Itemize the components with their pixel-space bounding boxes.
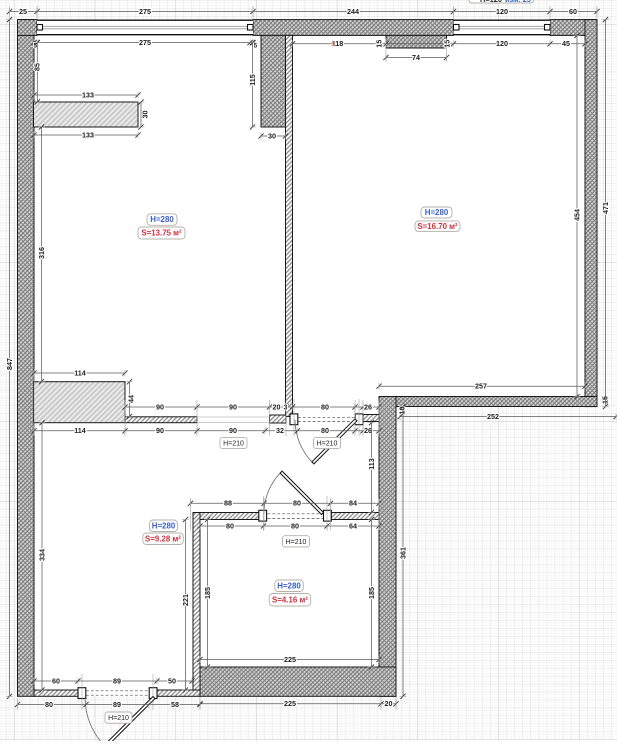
svg-text:80: 80 xyxy=(45,700,53,709)
svg-text:20: 20 xyxy=(273,402,281,411)
svg-text:S=13.75 м²: S=13.75 м² xyxy=(141,229,182,238)
svg-text:244: 244 xyxy=(347,7,359,16)
svg-text:185: 185 xyxy=(367,587,376,599)
svg-text:133: 133 xyxy=(82,90,94,99)
svg-text:изм. 25: изм. 25 xyxy=(505,0,531,4)
svg-text:114: 114 xyxy=(74,426,86,435)
svg-text:225: 225 xyxy=(284,655,296,664)
svg-text:120: 120 xyxy=(496,39,508,48)
svg-text:85: 85 xyxy=(33,63,42,71)
svg-text:120: 120 xyxy=(496,7,508,16)
svg-text:316: 316 xyxy=(37,247,46,259)
svg-text:20: 20 xyxy=(385,699,393,708)
svg-text:H=210: H=210 xyxy=(286,539,307,546)
svg-text:257: 257 xyxy=(475,382,487,391)
svg-text:334: 334 xyxy=(37,549,46,561)
svg-text:89: 89 xyxy=(113,676,121,685)
svg-text:275: 275 xyxy=(139,7,151,16)
svg-text:26: 26 xyxy=(364,426,372,435)
svg-text:50: 50 xyxy=(168,676,176,685)
svg-text:S=4.16 м²: S=4.16 м² xyxy=(272,595,308,604)
svg-text:88: 88 xyxy=(224,499,232,508)
svg-text:80: 80 xyxy=(226,521,234,530)
svg-text:15: 15 xyxy=(443,40,452,48)
svg-text:221: 221 xyxy=(181,594,190,606)
svg-text:454: 454 xyxy=(572,209,581,221)
svg-text:S=16.70 м²: S=16.70 м² xyxy=(417,222,458,231)
svg-text:60: 60 xyxy=(569,7,577,16)
svg-text:80: 80 xyxy=(293,499,301,508)
svg-text:44: 44 xyxy=(127,395,136,403)
svg-text:H=120: H=120 xyxy=(480,0,502,4)
svg-text:115: 115 xyxy=(248,74,257,86)
svg-text:45: 45 xyxy=(562,39,570,48)
svg-text:26: 26 xyxy=(364,402,372,411)
svg-text:32: 32 xyxy=(276,426,284,435)
svg-text:S=9.28 м²: S=9.28 м² xyxy=(145,534,181,543)
svg-text:90: 90 xyxy=(229,426,237,435)
svg-text:275: 275 xyxy=(139,38,151,47)
svg-text:90: 90 xyxy=(156,402,164,411)
svg-text:15: 15 xyxy=(375,40,384,48)
svg-text:H=210: H=210 xyxy=(108,715,129,722)
svg-text:60: 60 xyxy=(52,676,60,685)
svg-text:847: 847 xyxy=(5,358,14,370)
svg-text:113: 113 xyxy=(367,458,376,470)
svg-text:74: 74 xyxy=(412,53,420,62)
svg-text:225: 225 xyxy=(284,699,296,708)
svg-text:15: 15 xyxy=(601,396,610,404)
svg-text:80: 80 xyxy=(321,426,329,435)
svg-text:90: 90 xyxy=(156,426,164,435)
svg-text:3: 3 xyxy=(284,402,288,411)
svg-text:H=280: H=280 xyxy=(277,581,301,590)
svg-text:30: 30 xyxy=(141,111,150,119)
svg-text:80: 80 xyxy=(291,521,299,530)
svg-text:89: 89 xyxy=(113,700,121,709)
svg-text:185: 185 xyxy=(203,587,212,599)
svg-text:361: 361 xyxy=(398,547,407,559)
svg-text:252: 252 xyxy=(487,412,499,421)
svg-text:114: 114 xyxy=(74,368,86,377)
svg-text:5: 5 xyxy=(254,43,258,50)
svg-text:25: 25 xyxy=(19,7,27,16)
svg-text:H=210: H=210 xyxy=(223,441,244,448)
svg-text:30: 30 xyxy=(268,131,276,140)
svg-text:90: 90 xyxy=(229,402,237,411)
svg-text:471: 471 xyxy=(601,202,610,214)
svg-text:58: 58 xyxy=(171,700,179,709)
svg-text:133: 133 xyxy=(82,130,94,139)
svg-text:64: 64 xyxy=(349,521,357,530)
svg-text:H=210: H=210 xyxy=(317,441,338,448)
svg-text:H=280: H=280 xyxy=(150,215,174,224)
svg-text:84: 84 xyxy=(349,499,357,508)
svg-text:H=280: H=280 xyxy=(152,521,176,530)
svg-text:H=280: H=280 xyxy=(425,208,449,217)
svg-text:80: 80 xyxy=(321,402,329,411)
